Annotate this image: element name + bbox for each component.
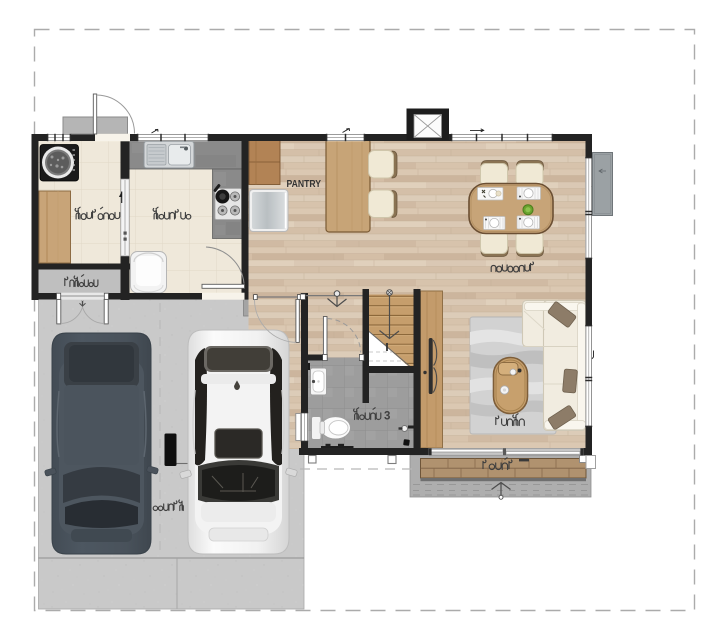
svg-text:3: 3 bbox=[384, 411, 390, 423]
svg-text:PANTRY: PANTRY bbox=[287, 178, 322, 190]
